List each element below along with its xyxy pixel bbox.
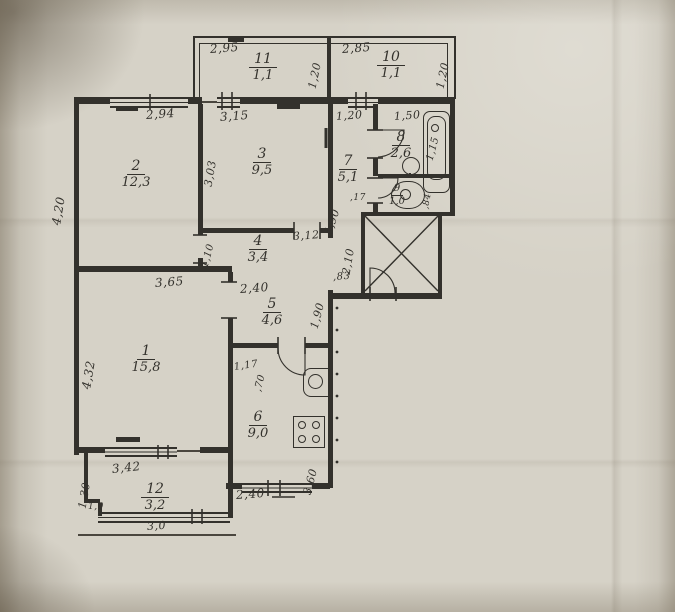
room-label-8: 8 2,6	[380, 126, 422, 162]
stair-shaft-cross	[365, 216, 438, 291]
room-number: 12	[141, 481, 169, 498]
plan-linework	[0, 0, 675, 612]
room-number: 8	[392, 129, 411, 146]
room-label-2: 2 12,3	[110, 155, 162, 191]
room-label-5: 5 4,6	[250, 293, 294, 329]
dimension-label: 3,15	[220, 108, 250, 124]
room-number: 6	[249, 409, 268, 426]
room-number: 9	[391, 183, 403, 196]
room-number: 10	[377, 49, 405, 66]
room-area: 5,1	[328, 170, 368, 186]
room-area: 12,3	[110, 175, 162, 191]
room-area: 1,0	[384, 196, 410, 208]
dimension-label: ,17	[350, 193, 366, 203]
room-label-12: 12 3,2	[130, 478, 180, 514]
room-number: 4	[249, 233, 268, 250]
room-area: 4,6	[250, 313, 294, 329]
dimension-label: 1,50	[394, 108, 421, 123]
room-label-4: 4 3,4	[236, 230, 280, 266]
room-label-11: 11 1,1	[240, 48, 286, 84]
room-label-9: 9 1,0	[384, 176, 410, 208]
room-number: 3	[253, 146, 272, 163]
room-area: 1,1	[368, 66, 414, 82]
scanned-floorplan-sheet: 11 1,1 10 1,1 2 12,3 3 9,5 7 5,1 8 2,6 9…	[0, 0, 675, 612]
dimension-label: 3,42	[111, 459, 141, 476]
dimension-label: 3,0	[147, 519, 167, 533]
dimension-label: ,83	[333, 271, 351, 283]
dimension-label: 2,95	[210, 40, 240, 56]
dimension-dots	[336, 307, 339, 464]
room-area: 2,6	[380, 146, 422, 162]
dimension-label: 3,12	[293, 228, 320, 243]
room-label-10: 10 1,1	[368, 46, 414, 82]
dimension-label: 2,94	[146, 106, 176, 122]
room-number: 2	[127, 158, 146, 175]
dimension-label: 2,40	[240, 280, 270, 296]
dimension-label: 2,85	[342, 40, 372, 56]
room-area: 3,4	[236, 250, 280, 266]
kitchen-door-arc	[278, 348, 305, 375]
room-label-6: 6 9,0	[234, 406, 282, 442]
dimension-label: 1,20	[336, 108, 363, 123]
dimension-label: 3,65	[155, 274, 185, 290]
room-area: 9,5	[238, 163, 286, 179]
room-number: 1	[137, 343, 156, 360]
room-label-1: 1 15,8	[120, 340, 172, 376]
room-area: 15,8	[120, 360, 172, 376]
room-number: 11	[249, 51, 277, 68]
room-area: 9,0	[234, 426, 282, 442]
dimension-label: 1,0	[88, 502, 104, 512]
room-label-7: 7 5,1	[328, 150, 368, 186]
entrance-door-arc	[370, 268, 395, 293]
room-area: 3,2	[130, 498, 180, 514]
room-label-3: 3 9,5	[238, 143, 286, 179]
dimension-label: 2,40	[236, 486, 266, 502]
room-number: 5	[263, 296, 282, 313]
room-area: 1,1	[240, 68, 286, 84]
room-number: 7	[339, 153, 358, 170]
